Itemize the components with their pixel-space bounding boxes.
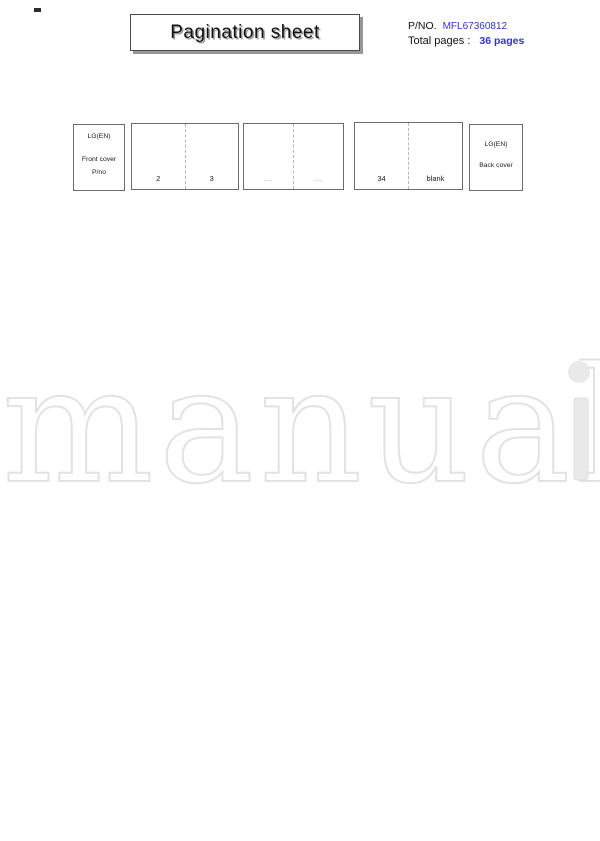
pagination-sheet-page: Pagination sheet P/NO. MFL67360812 Total… [0, 0, 600, 841]
watermark-outline-text: manual [2, 335, 600, 490]
back-cover-lang: LG(EN) [484, 141, 507, 148]
page-cell: ... [294, 124, 343, 189]
page-cell: 2 [132, 124, 186, 189]
spread-box-ellipsis: ... ... [243, 123, 344, 190]
manuali-watermark: manual [0, 335, 600, 490]
front-cover-label: Front cover [82, 156, 116, 163]
title-box: Pagination sheet [130, 14, 360, 51]
back-cover-box: LG(EN) Back cover [469, 124, 523, 191]
page-cell: blank [409, 123, 462, 189]
total-pages-label: Total pages : [408, 35, 470, 47]
total-pages-row: Total pages : 36 pages [408, 35, 524, 47]
page-cell: 3 [186, 124, 239, 189]
pno-row: P/NO. MFL67360812 [408, 20, 524, 32]
page-title: Pagination sheet [170, 22, 320, 44]
front-cover-pno: P/no [92, 169, 106, 176]
page-cell: ... [244, 124, 294, 189]
spread-box-2-3: 2 3 [131, 123, 239, 190]
pno-label: P/NO. [408, 20, 437, 32]
pno-value: MFL67360812 [443, 21, 508, 32]
front-cover-box: LG(EN) Front cover P/no [73, 124, 125, 191]
spread-box-34-blank: 34 blank [354, 122, 463, 190]
header-meta: P/NO. MFL67360812 Total pages : 36 pages [408, 20, 524, 47]
watermark-letter-i [568, 361, 590, 480]
total-pages-value: 36 pages [479, 35, 524, 47]
front-cover-lang: LG(EN) [87, 133, 110, 140]
page-cell: 34 [355, 123, 409, 189]
registration-mark [34, 8, 41, 12]
back-cover-label: Back cover [479, 162, 513, 169]
